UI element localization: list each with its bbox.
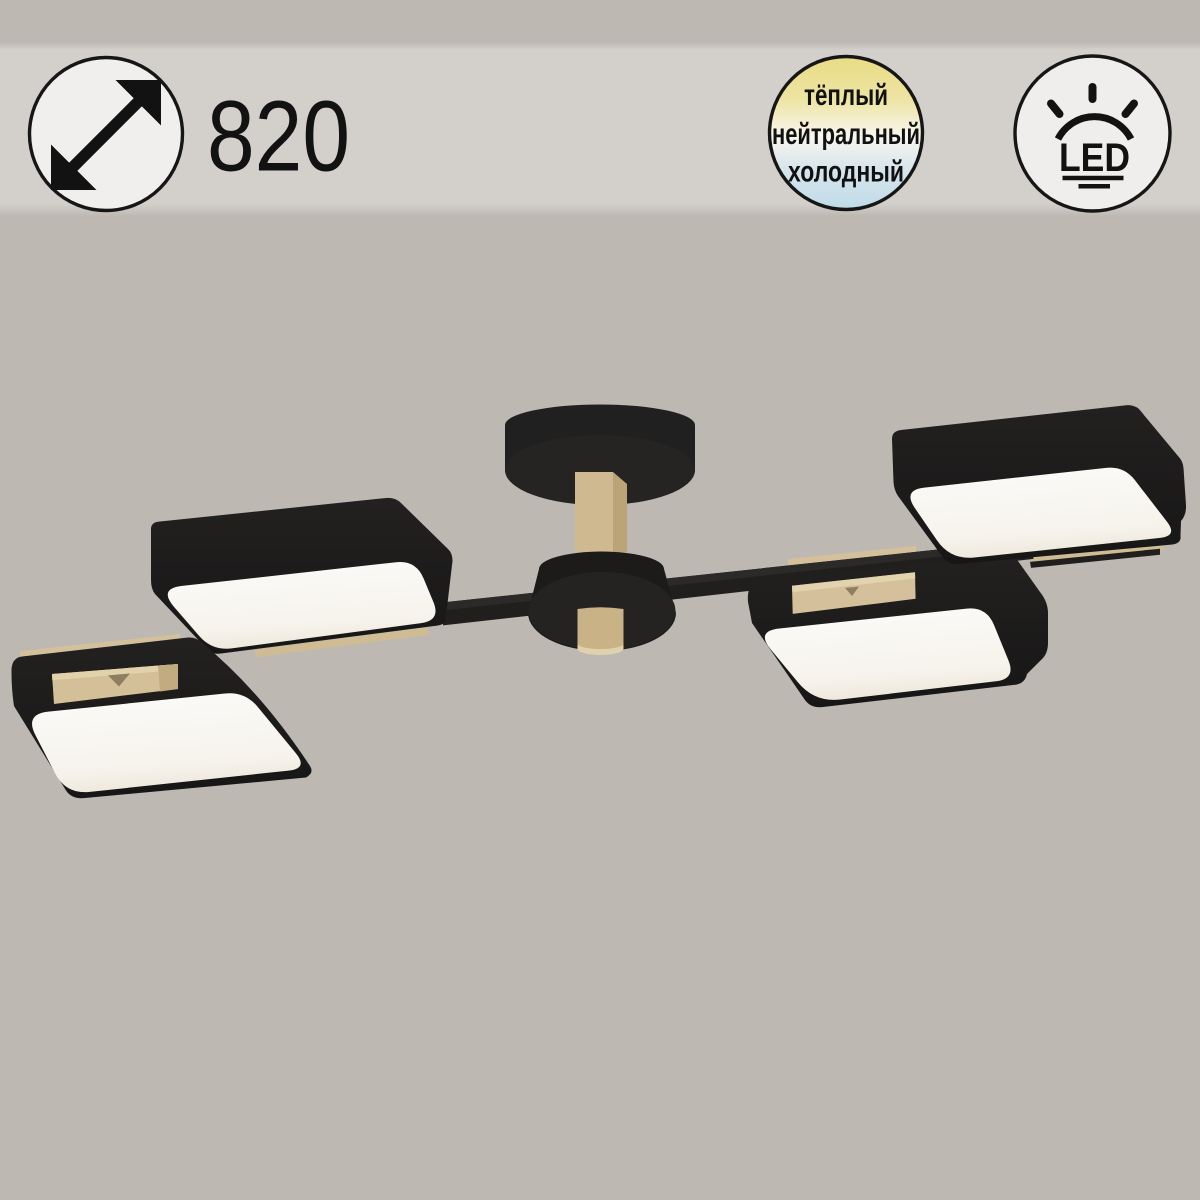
svg-text:LED: LED xyxy=(1059,136,1130,180)
svg-text:820: 820 xyxy=(207,81,350,193)
svg-text:холодный: холодный xyxy=(788,156,904,189)
svg-text:нейтральный: нейтральный xyxy=(772,118,920,151)
svg-text:тёплый: тёплый xyxy=(804,79,888,112)
